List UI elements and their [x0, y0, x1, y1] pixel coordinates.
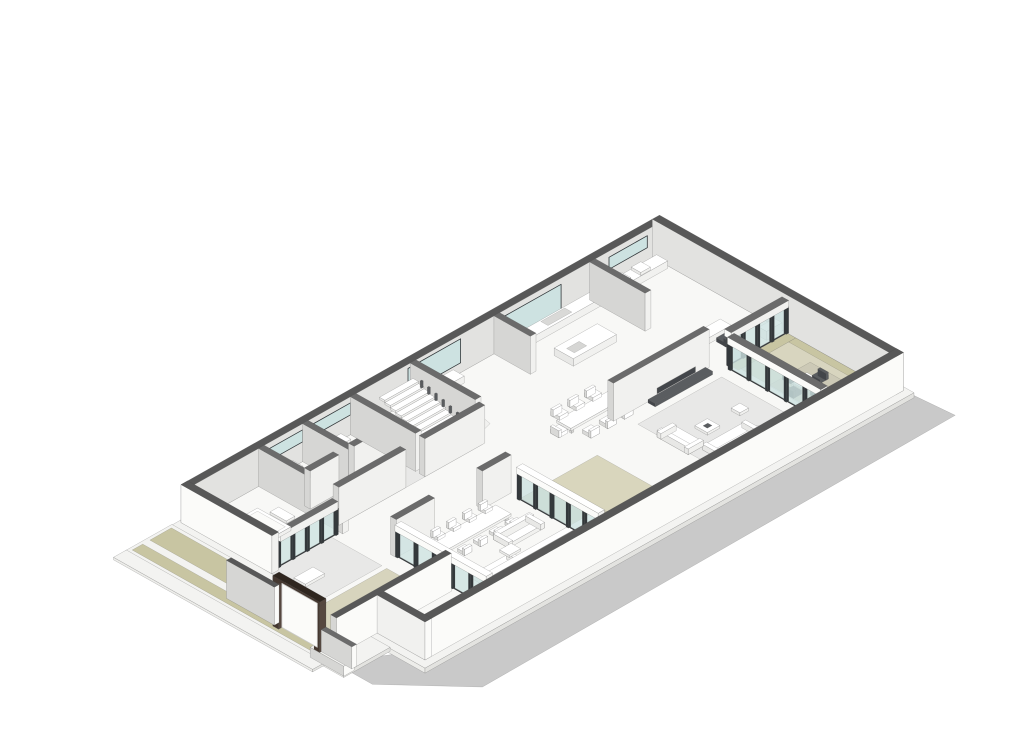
- floor-plan-canvas: [0, 0, 1024, 754]
- architectural-axonometric-drawing: [0, 0, 1024, 754]
